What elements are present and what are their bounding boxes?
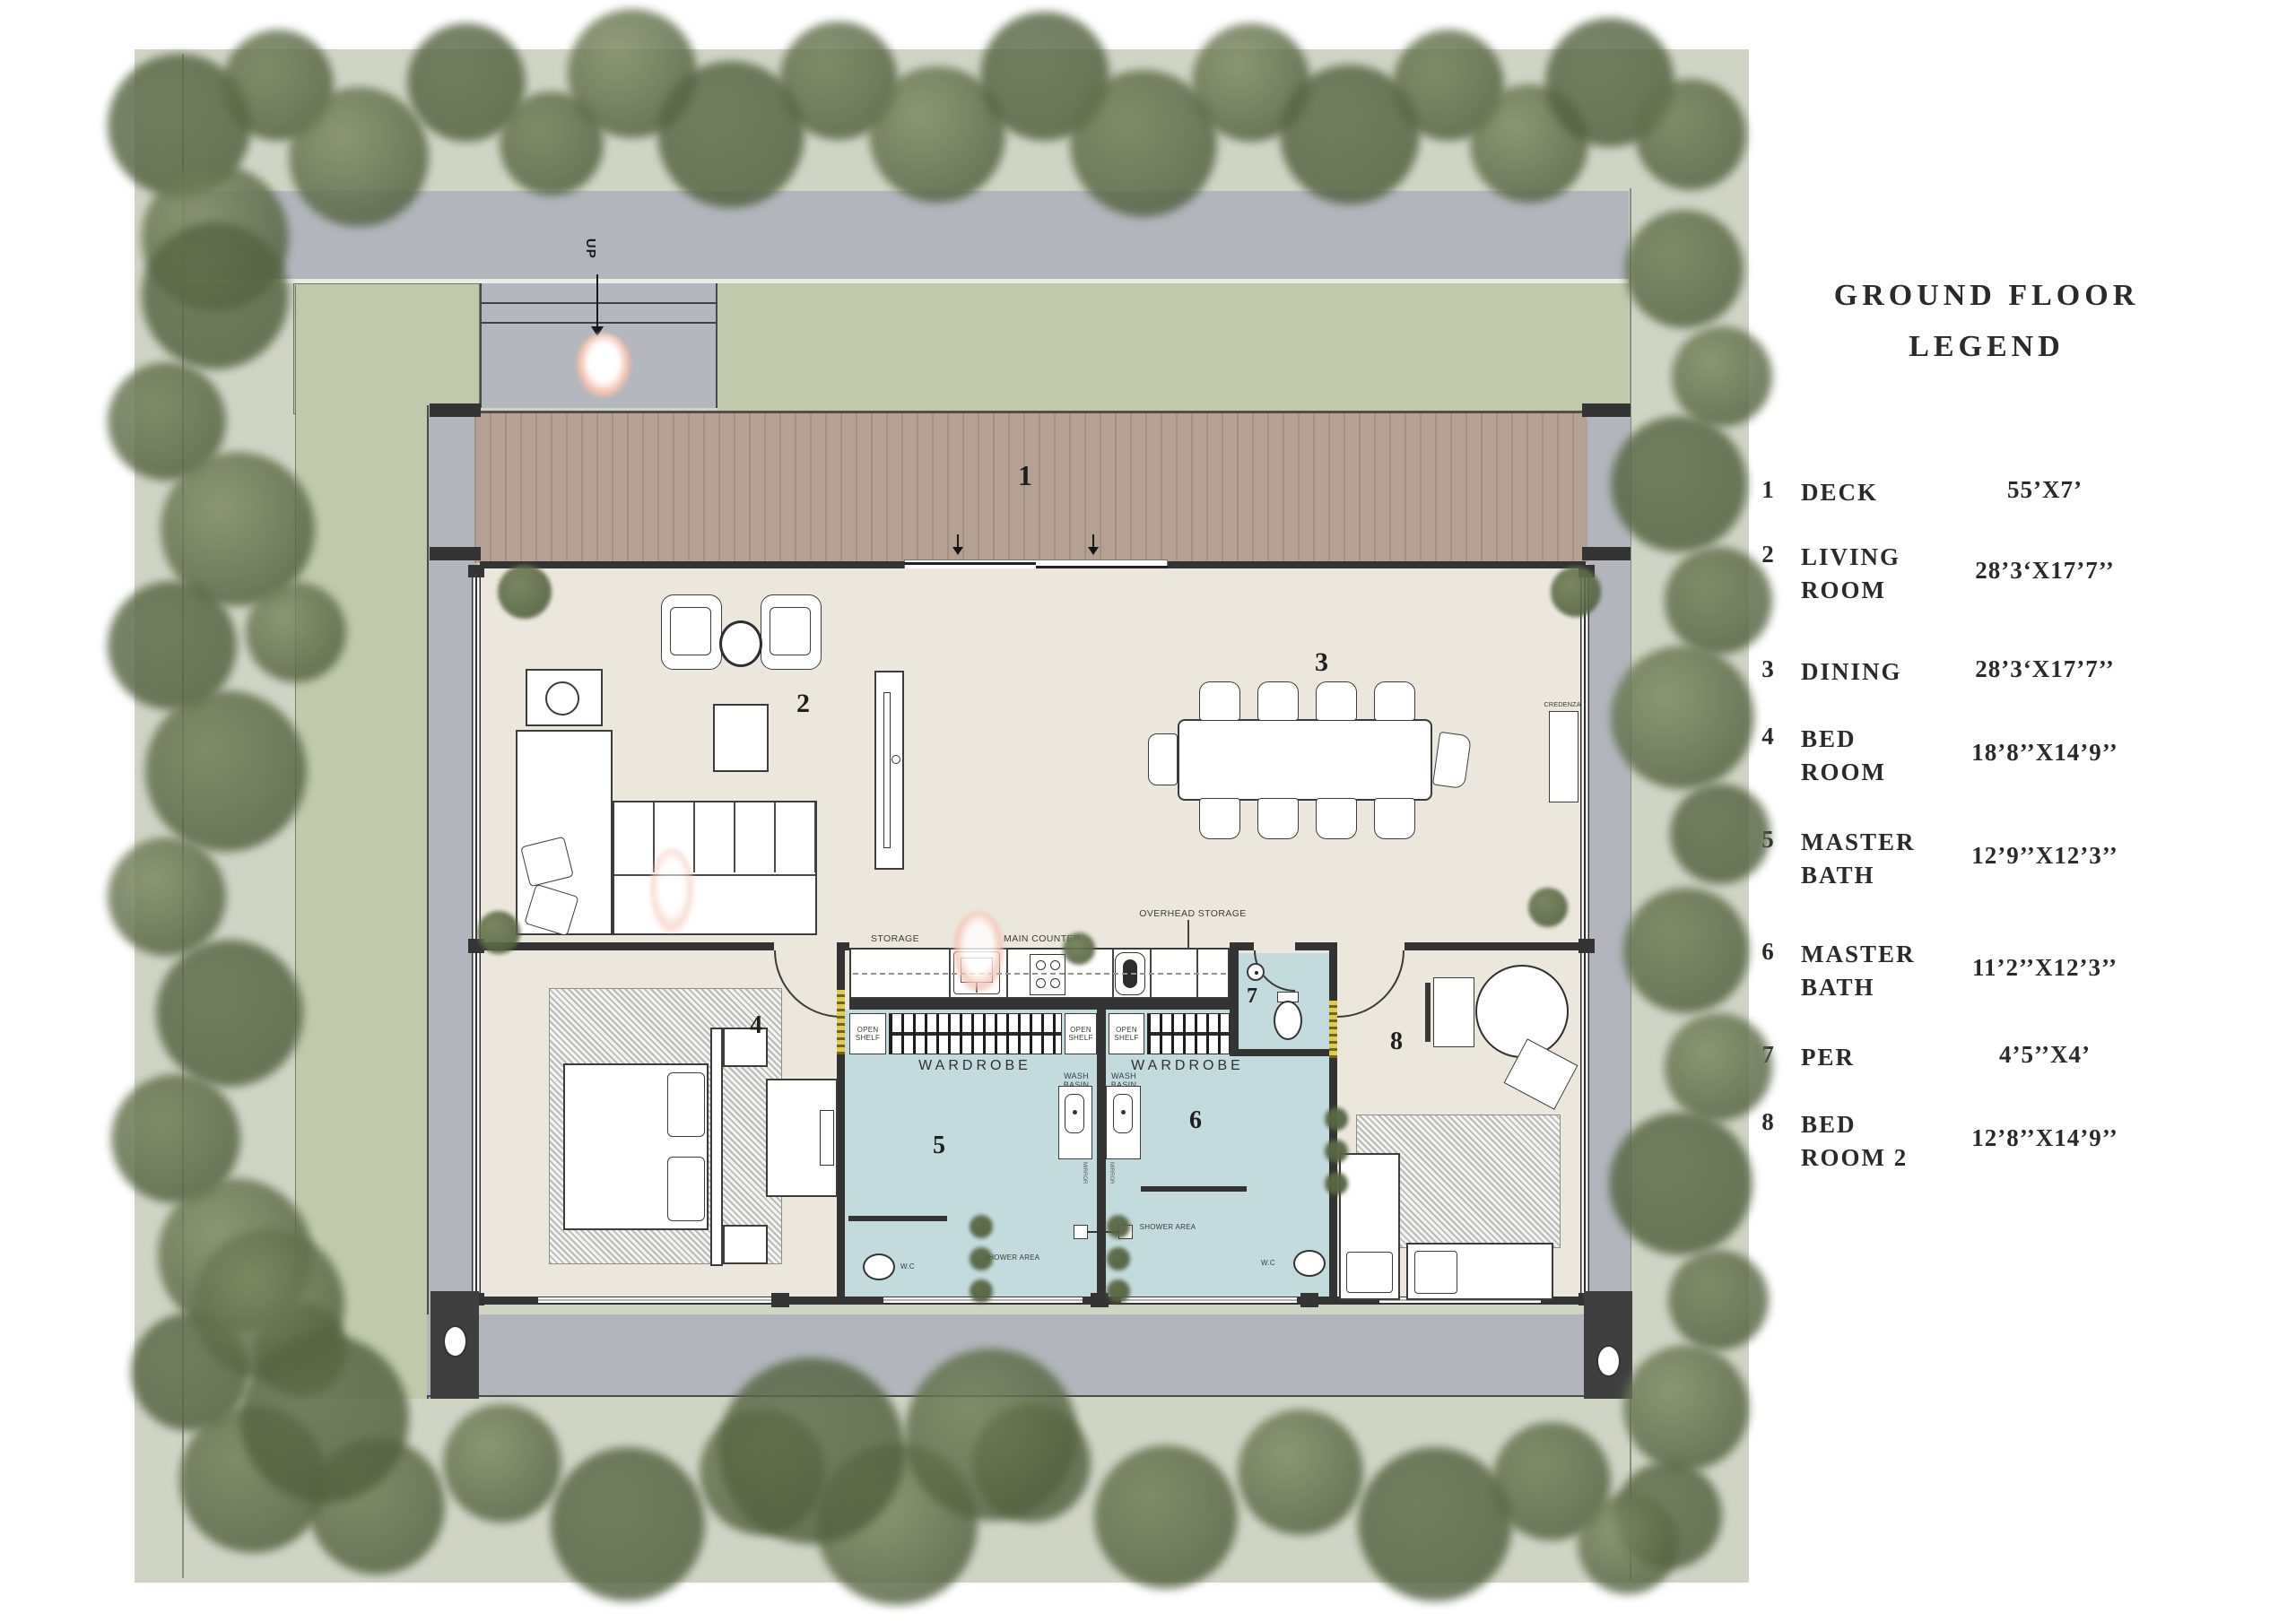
bedroom2-chair xyxy=(1433,977,1474,1047)
stair-tread-1 xyxy=(480,302,717,304)
lawn-west-strip xyxy=(295,285,427,1399)
legend-row: 5MASTERBATH12’9’’X12’3’’ xyxy=(1747,826,2196,898)
dining-chair xyxy=(1199,681,1240,721)
shower-head-1 xyxy=(1074,1225,1088,1239)
legend-item-number: 7 xyxy=(1747,1041,1788,1069)
nightstand xyxy=(723,1225,768,1264)
legend-item-dimensions: 55’X7’ xyxy=(1946,476,2144,504)
legend-item-label: PER xyxy=(1801,1041,1953,1074)
counter-centerline xyxy=(853,973,1226,975)
door-arrow-line-1 xyxy=(957,534,959,547)
dining-chair xyxy=(1257,798,1299,839)
burner xyxy=(1036,960,1046,970)
column xyxy=(1091,1293,1109,1307)
south-window-1 xyxy=(538,1297,776,1303)
legend-item-number: 8 xyxy=(1747,1108,1788,1136)
shower-area-label-2: SHOWER AREA xyxy=(1130,1221,1205,1232)
south-window-2 xyxy=(883,1297,1083,1303)
sofa-seat-line xyxy=(614,874,815,876)
legend-item-dimensions: 12’8’’X14’9’’ xyxy=(1946,1124,2144,1152)
dining-chair-end xyxy=(1148,733,1178,785)
powder-west-wall xyxy=(1230,942,1239,1056)
room-number-per: 7 xyxy=(1247,984,1257,1009)
dining-chair xyxy=(1316,681,1357,721)
basin-drain xyxy=(1121,1110,1126,1115)
legend-row: 4BEDROOM18’8’’X14’9’’ xyxy=(1747,723,2196,794)
daybed-2 xyxy=(1406,1243,1553,1300)
daybed-1 xyxy=(1339,1153,1400,1300)
armchair-seat xyxy=(770,607,811,655)
corner-column-se-symbol xyxy=(1596,1345,1621,1377)
bath5-stub-wall xyxy=(848,1216,947,1221)
legend-row: 6MASTERBATH11’2’’X12’3’’ xyxy=(1747,938,2196,1010)
legend-item-number: 1 xyxy=(1747,476,1788,504)
daybed-pillow xyxy=(1414,1251,1457,1294)
legend-title-line1: GROUND FLOOR xyxy=(1803,279,2170,313)
legend-item-dimensions: 12’9’’X12’3’’ xyxy=(1946,842,2144,870)
legend-item-number: 3 xyxy=(1747,655,1788,683)
room-number-bath1: 5 xyxy=(933,1132,945,1160)
legend-item-number: 4 xyxy=(1747,723,1788,750)
person-figure-living xyxy=(649,848,694,934)
door-arrow-line-2 xyxy=(1092,534,1094,547)
person-body xyxy=(576,334,631,398)
legend-row: 8BEDROOM 212’8’’X14’9’’ xyxy=(1747,1108,2196,1180)
wc-label-2: W.C xyxy=(1261,1259,1275,1267)
burner xyxy=(1050,960,1060,970)
legend-item-label: MASTERBATH xyxy=(1801,826,1953,892)
wc-toilet-2 xyxy=(1293,1250,1326,1277)
toilet-bowl xyxy=(1274,1001,1302,1040)
bed-pillow xyxy=(667,1157,705,1221)
legend-row: 1DECK55’X7’ xyxy=(1747,476,2196,548)
dining-table xyxy=(1178,719,1432,801)
bath-center-wall xyxy=(1097,1010,1106,1305)
mirror-label-1: MIRROR xyxy=(1082,1162,1087,1184)
person-figure-entry xyxy=(576,334,631,398)
basin-counter-2 xyxy=(1106,1086,1141,1159)
lawn-north-band xyxy=(717,283,1629,411)
deck-column xyxy=(430,403,481,417)
open-shelf-box-2: OPEN SHELF xyxy=(1065,1013,1097,1054)
basin-counter-1 xyxy=(1058,1086,1092,1159)
door-arrow-1 xyxy=(952,547,963,555)
open-shelf-box-3: OPEN SHELF xyxy=(1109,1013,1144,1054)
column xyxy=(468,565,484,577)
legend-item-label: DECK xyxy=(1801,476,1953,509)
corner-column-sw-symbol xyxy=(443,1325,467,1357)
shower-area-label-1: SHOWER AREA xyxy=(974,1252,1049,1262)
credenza xyxy=(1549,711,1578,802)
legend-row: 7PER4’5’’X4’ xyxy=(1747,1041,2196,1113)
wardrobe-label-1: WARDROBE xyxy=(909,1058,1040,1074)
bath6-stub-wall xyxy=(1141,1186,1247,1192)
south-window-3 xyxy=(1121,1297,1297,1303)
tv-console xyxy=(874,671,904,870)
storage-label: STORAGE xyxy=(857,932,933,945)
mirror-label-2: MIRROR xyxy=(1109,1162,1114,1184)
legend-item-label: BEDROOM 2 xyxy=(1801,1108,1953,1175)
column xyxy=(1300,1293,1318,1307)
dining-chair xyxy=(1374,798,1415,839)
east-window-wall xyxy=(1580,568,1589,1304)
legend-item-dimensions: 28’3‘X17’7’’ xyxy=(1946,655,2144,683)
bedroom2-chair-back xyxy=(1425,983,1431,1042)
deck-column xyxy=(1582,403,1631,417)
armchair-seat xyxy=(670,607,711,655)
bed-pillow xyxy=(667,1072,705,1137)
room-number-living: 2 xyxy=(796,689,810,719)
main-counter-label: MAIN COUNTER xyxy=(988,932,1096,945)
legend-item-number: 5 xyxy=(1747,826,1788,854)
wardrobe-unit-2 xyxy=(1147,1013,1230,1054)
wardrobe-label-2: WARDROBE xyxy=(1128,1058,1247,1074)
desk-monitor xyxy=(820,1110,834,1166)
burner xyxy=(1050,978,1060,988)
mid-wall-e xyxy=(1405,942,1589,950)
round-table xyxy=(1475,965,1569,1058)
wc-toilet-1 xyxy=(863,1253,895,1280)
open-shelf-box-1: OPEN SHELF xyxy=(849,1013,886,1054)
south-terrace-edge xyxy=(427,1395,1631,1397)
shower-connector xyxy=(1088,1231,1118,1233)
legend-item-dimensions: 28’3‘X17’7’’ xyxy=(1946,557,2144,585)
column xyxy=(771,1293,789,1307)
kitchen-back-wall xyxy=(849,999,1230,1010)
sofa-cushion-dividers xyxy=(614,802,815,872)
bedroom-desk xyxy=(766,1079,838,1197)
legend-item-number: 6 xyxy=(1747,938,1788,966)
round-side-table xyxy=(719,620,762,667)
legend-item-label: LIVINGROOM xyxy=(1801,541,1953,607)
room-number-bath2: 6 xyxy=(1189,1106,1202,1135)
driveway-road xyxy=(183,191,1629,281)
up-label: UP xyxy=(583,239,597,271)
legend-title-line2: LEGEND xyxy=(1803,330,2170,364)
deck-column xyxy=(1582,547,1631,560)
person-body xyxy=(649,848,694,934)
legend-row: 2LIVINGROOM28’3‘X17’7’’ xyxy=(1747,541,2196,612)
pocket-door-jamb-2 xyxy=(1329,1001,1337,1058)
legend-item-label: DINING xyxy=(1801,655,1953,689)
dining-chair xyxy=(1316,798,1357,839)
column xyxy=(1578,565,1595,577)
person-body xyxy=(952,911,1004,993)
legend-item-dimensions: 4’5’’X4’ xyxy=(1946,1041,2144,1069)
room-number-deck: 1 xyxy=(1018,459,1032,492)
wc-label-1: W.C xyxy=(900,1262,915,1271)
overhead-storage-label: OVERHEAD STORAGE xyxy=(1132,907,1254,920)
stair-tread-2 xyxy=(480,322,717,324)
legend-item-number: 2 xyxy=(1747,541,1788,568)
south-terrace xyxy=(427,1314,1631,1397)
tv-panel xyxy=(883,692,891,848)
west-veranda-edge xyxy=(427,405,429,1399)
sliding-door-panel-1 xyxy=(904,562,1036,565)
burner xyxy=(1036,978,1046,988)
legend-item-label: MASTERBATH xyxy=(1801,938,1953,1004)
deck-wall-right xyxy=(1166,561,1586,568)
room-number-bedroom2: 8 xyxy=(1390,1028,1403,1056)
dining-chair xyxy=(1257,681,1299,721)
west-window-wall xyxy=(472,568,481,1304)
legend-item-label: BEDROOM xyxy=(1801,723,1953,789)
room-number-bedroom: 4 xyxy=(750,1011,762,1040)
legend-item-dimensions: 18’8’’X14’9’’ xyxy=(1946,739,2144,767)
overhead-storage-leader xyxy=(1187,920,1189,949)
deck-column xyxy=(430,547,481,560)
room-number-dining: 3 xyxy=(1315,647,1328,678)
sofa-seat xyxy=(613,801,817,935)
basin-drain xyxy=(1073,1110,1077,1115)
stove-burners-icon xyxy=(1030,954,1065,995)
mid-wall-a xyxy=(480,942,774,950)
bed-headboard xyxy=(710,1028,723,1266)
up-arrow-line xyxy=(596,274,598,328)
floor-plan-page: UP 1 xyxy=(0,0,2296,1622)
credenza-label: CREDENZA xyxy=(1526,700,1598,708)
dining-chair xyxy=(1374,681,1415,721)
person-figure-kitchen xyxy=(952,911,1004,993)
legend-row: 3DINING28’3‘X17’7’’ xyxy=(1747,655,2196,727)
table-lamp xyxy=(545,681,579,716)
dining-chair xyxy=(1199,798,1240,839)
bedroom2-west-wall xyxy=(1329,942,1337,1305)
light-dot xyxy=(1255,971,1258,975)
coffee-table xyxy=(713,704,769,772)
deck-wall-left xyxy=(480,561,906,568)
ceiling-light-icon xyxy=(1247,963,1265,981)
armchair xyxy=(761,594,822,670)
legend-item-dimensions: 11’2’’X12’3’’ xyxy=(1946,954,2144,982)
tv-knob xyxy=(891,755,900,764)
powder-south-wall xyxy=(1230,1049,1336,1056)
armchair xyxy=(661,594,722,670)
wardrobe-unit-1 xyxy=(889,1013,1062,1054)
pocket-door-jamb-1 xyxy=(837,990,845,1054)
daybed-pillow xyxy=(1346,1252,1393,1293)
door-arrow-2 xyxy=(1088,547,1099,555)
